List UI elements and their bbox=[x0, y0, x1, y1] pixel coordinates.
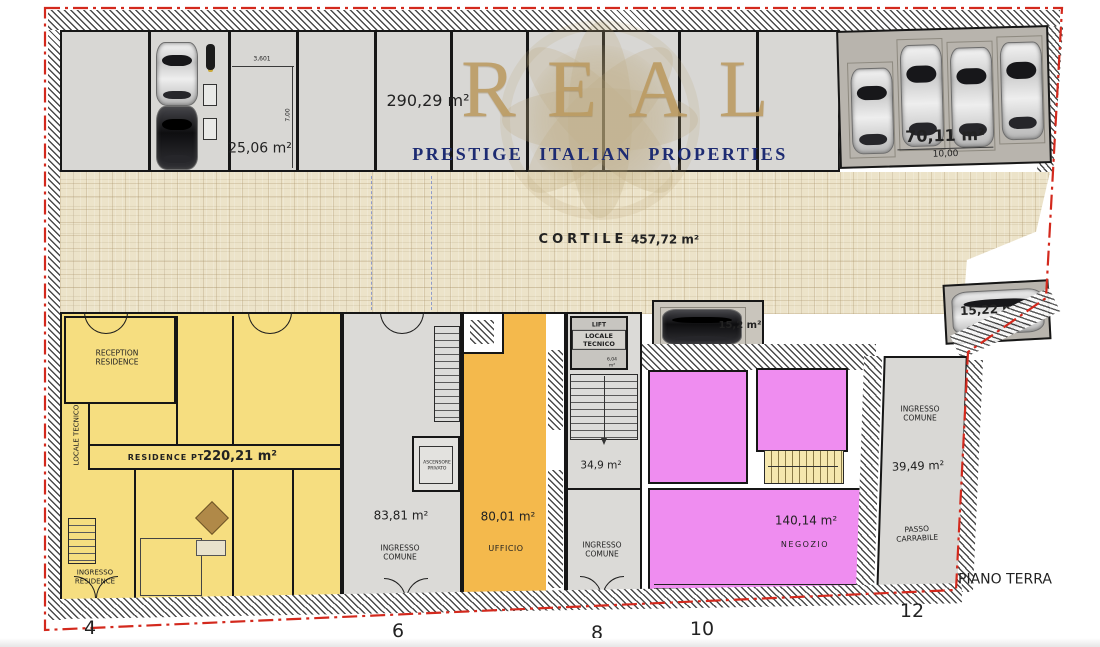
office-right-wall bbox=[548, 350, 563, 430]
residence-wall bbox=[134, 470, 136, 602]
common1-name-label: INGRESSO COMUNE bbox=[368, 544, 432, 563]
garage-stall-area-label: 25,06 m² bbox=[228, 140, 292, 158]
common-entrance-3-unit bbox=[876, 356, 967, 594]
residence-wall bbox=[176, 316, 178, 444]
floor-plan-page: 3,601 7,00 25,06 m² 290,29 m² 70,11 m² 1… bbox=[0, 0, 1100, 647]
shop-name-label: NEGOZIO bbox=[781, 540, 829, 550]
car-white-top-view bbox=[156, 42, 198, 106]
residence-wall bbox=[292, 470, 294, 602]
shop-room-a bbox=[648, 370, 748, 484]
bed bbox=[140, 538, 202, 596]
shop-room-b bbox=[756, 368, 848, 452]
garage-divider bbox=[756, 32, 759, 170]
residence-name-label: RESIDENCE PT bbox=[128, 453, 205, 463]
residence-entry-stairs bbox=[68, 518, 96, 564]
common2-name-label: INGRESSO COMUNE bbox=[573, 541, 631, 560]
kitchen-counter bbox=[196, 540, 226, 556]
dim-line-horizontal bbox=[232, 66, 294, 67]
garage-divider bbox=[678, 32, 681, 170]
tech-name-label: LOCALE TECNICO bbox=[572, 330, 626, 350]
moto-symbol bbox=[203, 84, 217, 106]
office-right-wall bbox=[548, 470, 563, 588]
garage-divider bbox=[526, 32, 529, 170]
common3-area-label: 39,49 m² bbox=[892, 458, 945, 474]
common3-name-label: INGRESSO COMUNE bbox=[890, 405, 950, 424]
carport: 70,11 m² 10,00 bbox=[836, 25, 1052, 169]
car-dark-top-view bbox=[156, 106, 198, 170]
shop-area-label: 140,14 m² bbox=[775, 514, 837, 529]
lift-label: LIFT bbox=[592, 321, 606, 329]
garage-divider bbox=[296, 32, 299, 170]
common1-area-label: 83,81 m² bbox=[374, 509, 429, 524]
plan-title: PIANO TERRA bbox=[958, 571, 1052, 589]
carport-width-label: 10,00 bbox=[933, 149, 959, 161]
motorcycle-top-view bbox=[206, 44, 215, 70]
residence-wall bbox=[232, 316, 234, 444]
residence-area-label: 220,21 m² bbox=[203, 449, 277, 465]
boundary-dashed-line bbox=[371, 176, 372, 310]
tech-area-label: 6,04 m² bbox=[605, 357, 619, 368]
dim-line-vertical bbox=[292, 66, 293, 168]
shop-stairs-arrow-line bbox=[768, 466, 838, 467]
shop-top-wall bbox=[642, 344, 876, 370]
car-silver-top-view bbox=[850, 67, 894, 154]
moto-symbol bbox=[203, 118, 217, 140]
cortile-area-label: 457,72 m² bbox=[631, 233, 699, 248]
private-lift: ASCENSORE PRIVATO bbox=[412, 436, 460, 492]
office-area-label: 80,01 m² bbox=[481, 510, 536, 525]
boundary-dashed-line bbox=[431, 176, 432, 310]
office-notch-wall bbox=[470, 320, 494, 344]
car-white-top-view bbox=[999, 41, 1044, 140]
garage-divider bbox=[148, 32, 151, 170]
stairs-arrow bbox=[601, 438, 607, 445]
cortile-name-label: CORTILE bbox=[539, 232, 628, 248]
street-number-12: 12 bbox=[900, 600, 924, 624]
garage-divider bbox=[374, 32, 377, 170]
common1-stairs bbox=[434, 326, 460, 422]
carport-area-label: 70,11 m² bbox=[905, 125, 985, 147]
parking-a-area-label: 15,2 m² bbox=[719, 320, 762, 333]
garage-hall-area-label: 290,29 m² bbox=[386, 91, 469, 111]
dim-depth-label: 7,00 bbox=[284, 108, 292, 121]
common3-passage-label: PASSO CARRABILE bbox=[885, 523, 950, 545]
garage-divider bbox=[602, 32, 605, 170]
residence-wall bbox=[232, 470, 234, 602]
dim-width-label: 3,601 bbox=[253, 55, 270, 63]
stairs-direction-line bbox=[604, 376, 605, 438]
office-name-label: UFFICIO bbox=[488, 544, 523, 554]
stairwell-area-label: 34,9 m² bbox=[580, 459, 621, 472]
tech-lift-block: LIFT LOCALE TECNICO 6,04 m² bbox=[570, 316, 628, 370]
private-lift-label: ASCENSORE PRIVATO bbox=[420, 460, 454, 471]
stairwell-wall bbox=[568, 488, 640, 490]
page-bottom-strip bbox=[0, 638, 1100, 647]
locale-tecnico-label: LOCALE TECNICO bbox=[73, 405, 82, 466]
reception-label: RECEPTION RESIDENCE bbox=[80, 349, 154, 368]
